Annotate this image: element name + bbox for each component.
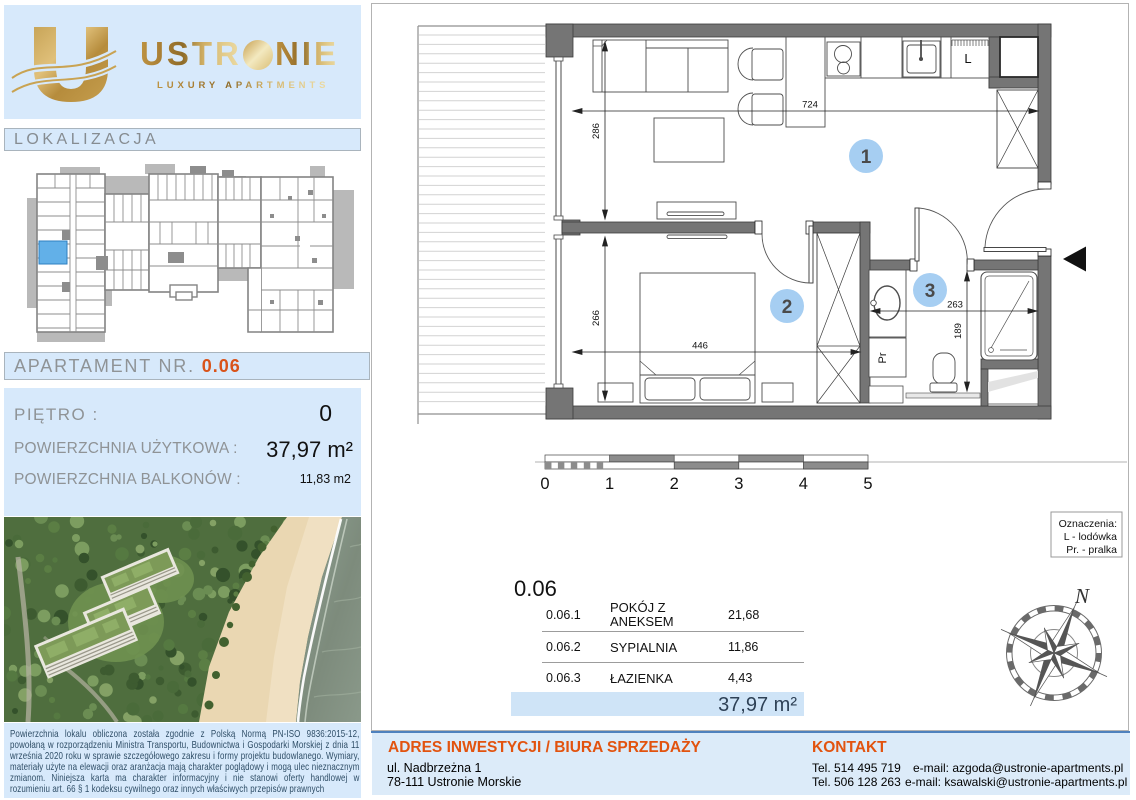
svg-text:NIE: NIE <box>275 35 339 72</box>
svg-text:724: 724 <box>802 100 818 111</box>
svg-text:USTR: USTR <box>140 35 242 72</box>
svg-text:446: 446 <box>692 341 708 352</box>
svg-text:2: 2 <box>782 297 793 318</box>
svg-text:2: 2 <box>670 475 679 493</box>
svg-text:1: 1 <box>605 475 614 493</box>
svg-text:286: 286 <box>591 123 602 139</box>
svg-text:L: L <box>964 51 971 66</box>
svg-text:L - lodówka: L - lodówka <box>1064 531 1117 543</box>
svg-text:1: 1 <box>861 147 872 168</box>
svg-text:N: N <box>1074 584 1090 608</box>
svg-text:266: 266 <box>591 310 602 326</box>
svg-text:Pr. - pralka: Pr. - pralka <box>1066 544 1117 556</box>
svg-text:Pr: Pr <box>877 352 889 363</box>
svg-text:3: 3 <box>734 475 743 493</box>
svg-text:3: 3 <box>925 281 936 302</box>
svg-text:0: 0 <box>540 475 549 493</box>
svg-text:4: 4 <box>799 475 808 493</box>
svg-text:5: 5 <box>863 475 872 493</box>
svg-text:263: 263 <box>947 300 963 311</box>
svg-text:189: 189 <box>953 323 964 339</box>
svg-text:LUXURY APARTMENTS: LUXURY APARTMENTS <box>157 80 329 91</box>
svg-text:Oznaczenia:: Oznaczenia: <box>1059 518 1117 530</box>
